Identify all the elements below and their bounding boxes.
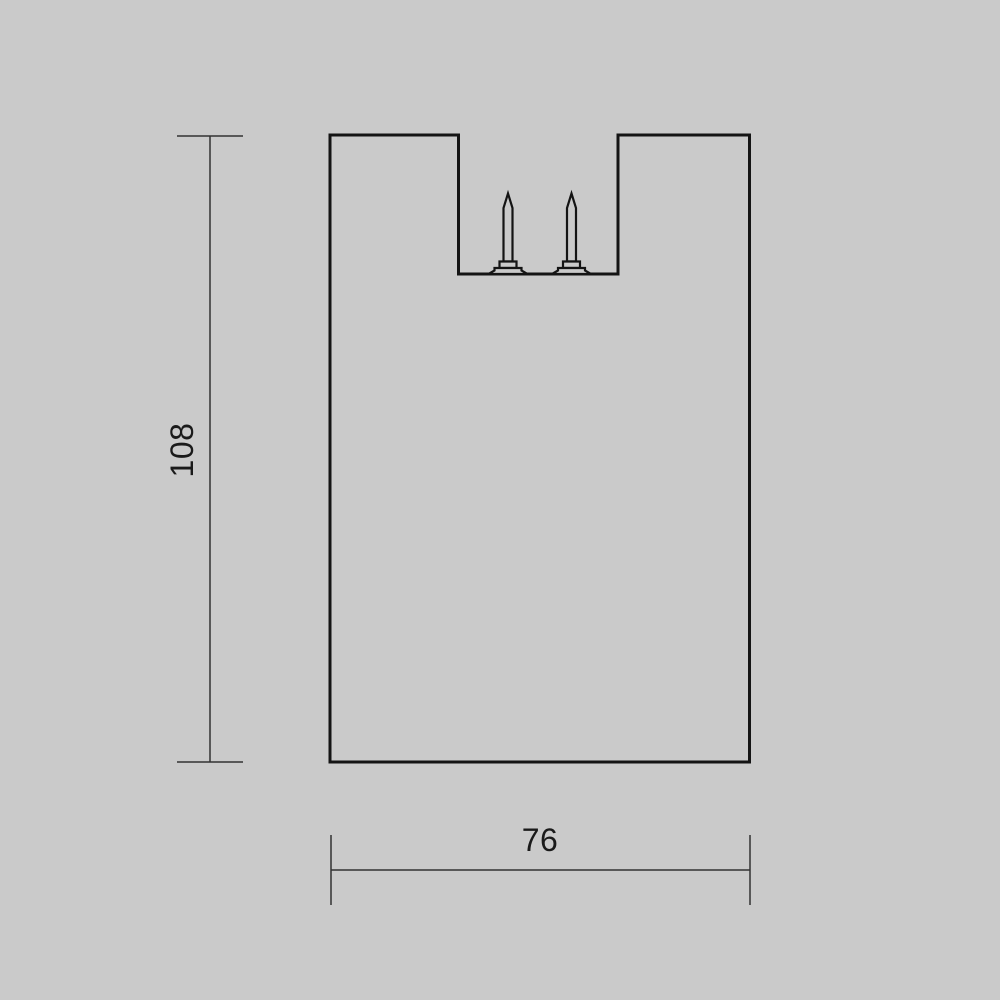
pin-shaft [504,194,513,262]
product-body-outline [330,135,750,762]
contact-pin-right [552,194,591,275]
product-dimension-drawing: 108 76 [0,0,1000,1000]
width-dimension-label: 76 [522,822,559,858]
dimension-drawing-canvas: 108 76 [0,0,1000,1000]
pin-base [489,268,528,274]
height-dimension: 108 [164,136,243,762]
pin-base [552,268,591,274]
width-dimension: 76 [331,822,750,905]
height-dimension-label: 108 [164,423,200,478]
pin-shaft [567,194,576,262]
contact-pin-left [489,194,528,275]
product-body [330,135,750,762]
